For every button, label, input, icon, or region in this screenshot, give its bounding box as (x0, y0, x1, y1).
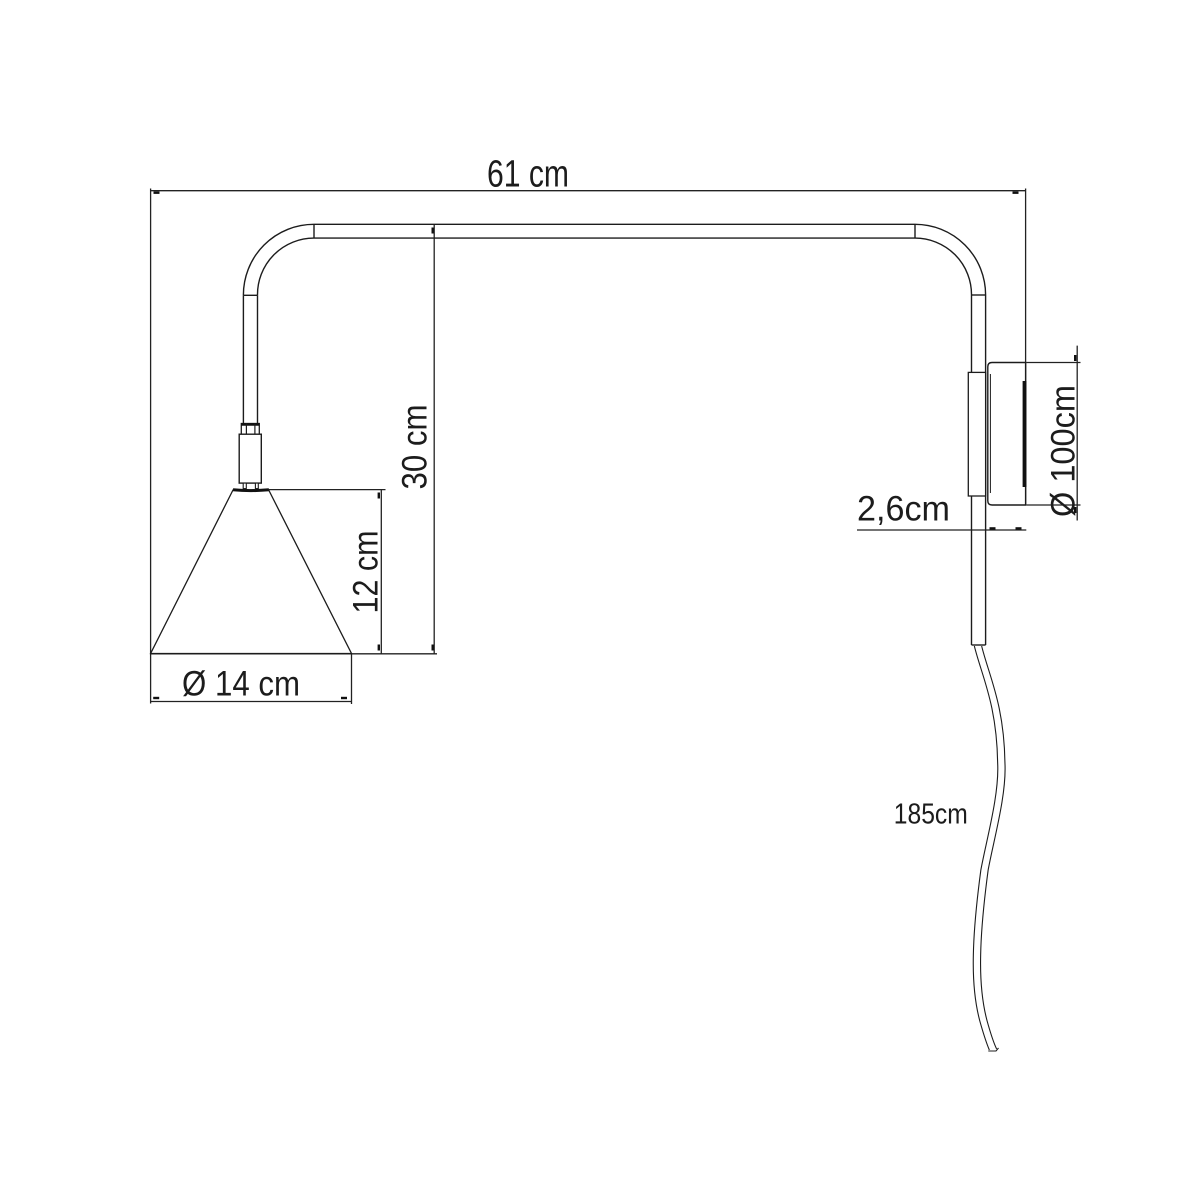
svg-text:Ø 14 cm: Ø 14 cm (182, 665, 300, 704)
svg-text:61 cm: 61 cm (487, 154, 569, 196)
svg-text:Ø 100cm: Ø 100cm (1045, 385, 1083, 517)
svg-text:2,6cm: 2,6cm (857, 490, 950, 529)
svg-text:185cm: 185cm (894, 798, 968, 830)
svg-text:12 cm: 12 cm (347, 531, 386, 614)
svg-text:30 cm: 30 cm (396, 405, 435, 490)
